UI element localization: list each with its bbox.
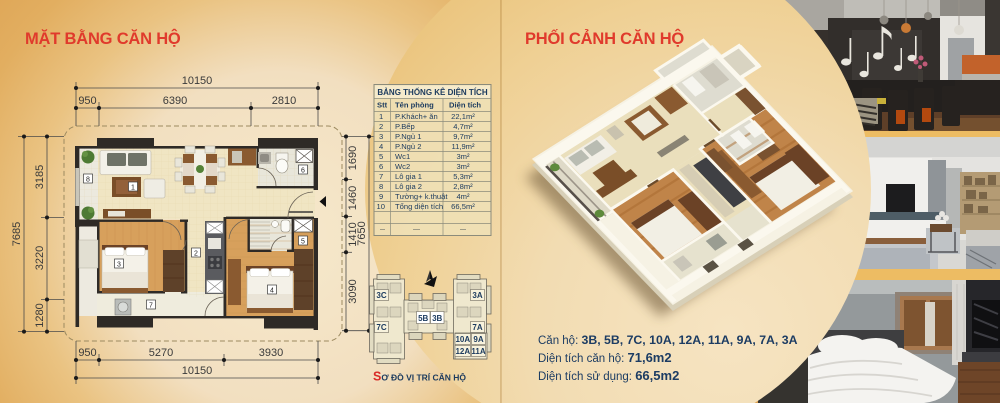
svg-text:6: 6 xyxy=(379,162,383,171)
svg-text:Lô gia 2: Lô gia 2 xyxy=(395,182,422,191)
svg-text:Tổng diện tích: Tổng diện tích xyxy=(395,202,443,211)
svg-text:Diện tích: Diện tích xyxy=(449,101,481,110)
svg-text:2: 2 xyxy=(379,122,383,131)
svg-text:950: 950 xyxy=(78,95,96,107)
svg-text:6390: 6390 xyxy=(163,95,187,107)
svg-text:PHỐI CẢNH CĂN HỘ: PHỐI CẢNH CĂN HỘ xyxy=(525,28,684,48)
svg-text:3B: 3B xyxy=(432,314,442,323)
svg-text:3220: 3220 xyxy=(34,246,46,270)
svg-text:6: 6 xyxy=(301,167,305,174)
svg-text:9,7m²: 9,7m² xyxy=(453,132,473,141)
svg-text:Diện tích sử dụng: 66,5m2: Diện tích sử dụng: 66,5m2 xyxy=(538,368,679,383)
svg-text:1690: 1690 xyxy=(347,146,359,170)
svg-text:7: 7 xyxy=(149,302,153,309)
svg-text:5: 5 xyxy=(379,152,383,161)
svg-text:11,9m²: 11,9m² xyxy=(451,142,475,151)
svg-text:950: 950 xyxy=(78,347,96,359)
svg-text:7C: 7C xyxy=(376,323,386,332)
svg-text:3: 3 xyxy=(379,132,383,141)
svg-text:Căn hộ: 3B, 5B, 7C, 10A, 12A,: Căn hộ: 3B, 5B, 7C, 10A, 12A, 11A, 9A, 7… xyxy=(538,333,798,347)
svg-text:P.Bếp: P.Bếp xyxy=(395,122,415,131)
svg-text:2,8m²: 2,8m² xyxy=(453,182,473,191)
svg-text:8: 8 xyxy=(379,182,383,191)
svg-text:22,1m²: 22,1m² xyxy=(451,112,475,121)
svg-text:Wc1: Wc1 xyxy=(395,152,410,161)
svg-text:8: 8 xyxy=(86,176,90,183)
svg-text:Stt: Stt xyxy=(377,101,388,110)
svg-text:P.Ngủ 1: P.Ngủ 1 xyxy=(395,132,421,141)
svg-text:1280: 1280 xyxy=(34,303,46,327)
svg-text:3m²: 3m² xyxy=(456,162,470,171)
svg-text:4m²: 4m² xyxy=(456,192,470,201)
svg-text:2810: 2810 xyxy=(272,95,296,107)
svg-text:10150: 10150 xyxy=(182,365,213,377)
svg-text:Lô gia 1: Lô gia 1 xyxy=(395,172,422,181)
svg-text:10A: 10A xyxy=(455,335,470,344)
svg-text:7A: 7A xyxy=(472,323,482,332)
svg-text:4: 4 xyxy=(270,287,274,294)
svg-text:7685: 7685 xyxy=(11,222,23,246)
svg-text:5: 5 xyxy=(301,238,305,245)
svg-text:1: 1 xyxy=(131,184,135,191)
svg-text:BẢNG THỐNG KÊ DIỆN TÍCH: BẢNG THỐNG KÊ DIỆN TÍCH xyxy=(377,87,487,97)
svg-text:2: 2 xyxy=(194,250,198,257)
svg-text:9A: 9A xyxy=(473,335,483,344)
svg-text:P.Khách+ ăn: P.Khách+ ăn xyxy=(395,112,438,121)
svg-text:Diện tích căn hộ: 71,6m2: Diện tích căn hộ: 71,6m2 xyxy=(538,350,672,365)
svg-text:3930: 3930 xyxy=(259,347,283,359)
svg-text:12A: 12A xyxy=(455,347,470,356)
svg-text:MẶT BẰNG CĂN HỘ: MẶT BẰNG CĂN HỘ xyxy=(25,29,181,48)
svg-text:5270: 5270 xyxy=(149,347,173,359)
svg-text:10: 10 xyxy=(377,202,385,211)
svg-text:SƠ ĐỒ VỊ TRÍ CĂN HỘ: SƠ ĐỒ VỊ TRÍ CĂN HỘ xyxy=(373,370,466,384)
svg-text:4,7m²: 4,7m² xyxy=(453,122,473,131)
svg-text:3m²: 3m² xyxy=(456,152,470,161)
svg-text:4: 4 xyxy=(379,142,383,151)
svg-text:5B: 5B xyxy=(418,314,428,323)
svg-text:66,5m²: 66,5m² xyxy=(451,202,475,211)
svg-text:1460: 1460 xyxy=(347,186,359,210)
svg-text:9: 9 xyxy=(379,192,383,201)
svg-text:3C: 3C xyxy=(376,291,386,300)
svg-text:5,3m²: 5,3m² xyxy=(453,172,473,181)
svg-text:Tường+ k.thuật: Tường+ k.thuật xyxy=(395,192,448,201)
svg-text:1: 1 xyxy=(379,112,383,121)
svg-text:3A: 3A xyxy=(472,291,482,300)
svg-text:3090: 3090 xyxy=(347,279,359,303)
svg-text:P.Ngủ 2: P.Ngủ 2 xyxy=(395,142,421,151)
svg-text:3: 3 xyxy=(117,261,121,268)
svg-text:3185: 3185 xyxy=(34,165,46,189)
svg-text:Tên phòng: Tên phòng xyxy=(395,101,434,110)
svg-text:11A: 11A xyxy=(471,347,485,356)
svg-text:7: 7 xyxy=(379,172,383,181)
svg-text:Wc2: Wc2 xyxy=(395,162,410,171)
svg-text:10150: 10150 xyxy=(182,75,213,87)
svg-text:7650: 7650 xyxy=(356,221,368,245)
